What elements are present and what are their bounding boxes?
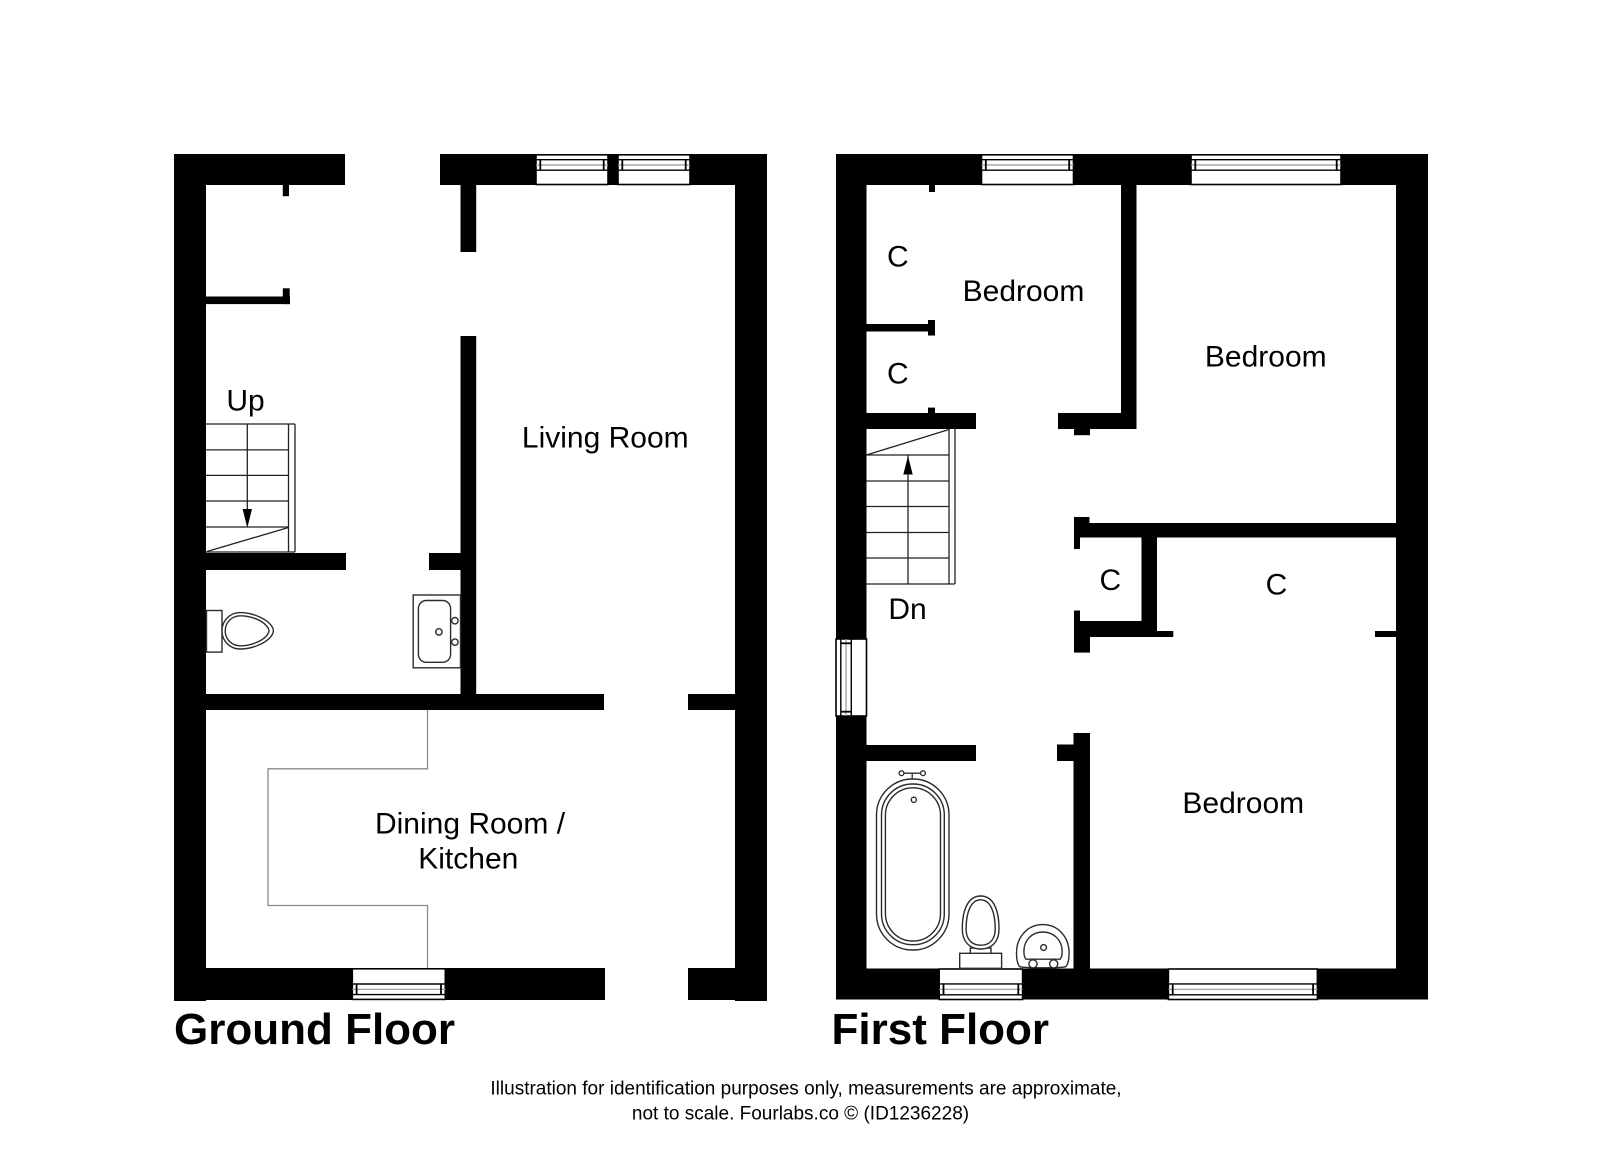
svg-text:C: C <box>1266 569 1288 602</box>
svg-text:Dn: Dn <box>888 593 926 626</box>
svg-text:Bedroom: Bedroom <box>1205 340 1327 373</box>
svg-text:Kitchen: Kitchen <box>418 843 518 876</box>
svg-text:C: C <box>887 241 909 274</box>
svg-text:not to scale. Fourlabs.co © (I: not to scale. Fourlabs.co © (ID1236228) <box>632 1104 969 1125</box>
svg-text:Up: Up <box>226 385 264 418</box>
svg-text:First Floor: First Floor <box>832 1005 1050 1054</box>
svg-text:Bedroom: Bedroom <box>1182 787 1304 820</box>
svg-text:Bedroom: Bedroom <box>963 275 1085 308</box>
svg-text:Ground Floor: Ground Floor <box>174 1005 455 1054</box>
svg-text:C: C <box>1099 564 1121 597</box>
svg-text:C: C <box>887 358 909 391</box>
svg-text:Illustration for identificatio: Illustration for identification purposes… <box>490 1079 1121 1100</box>
svg-text:Living Room: Living Room <box>522 422 689 455</box>
svg-text:Dining Room /: Dining Room / <box>375 808 566 841</box>
